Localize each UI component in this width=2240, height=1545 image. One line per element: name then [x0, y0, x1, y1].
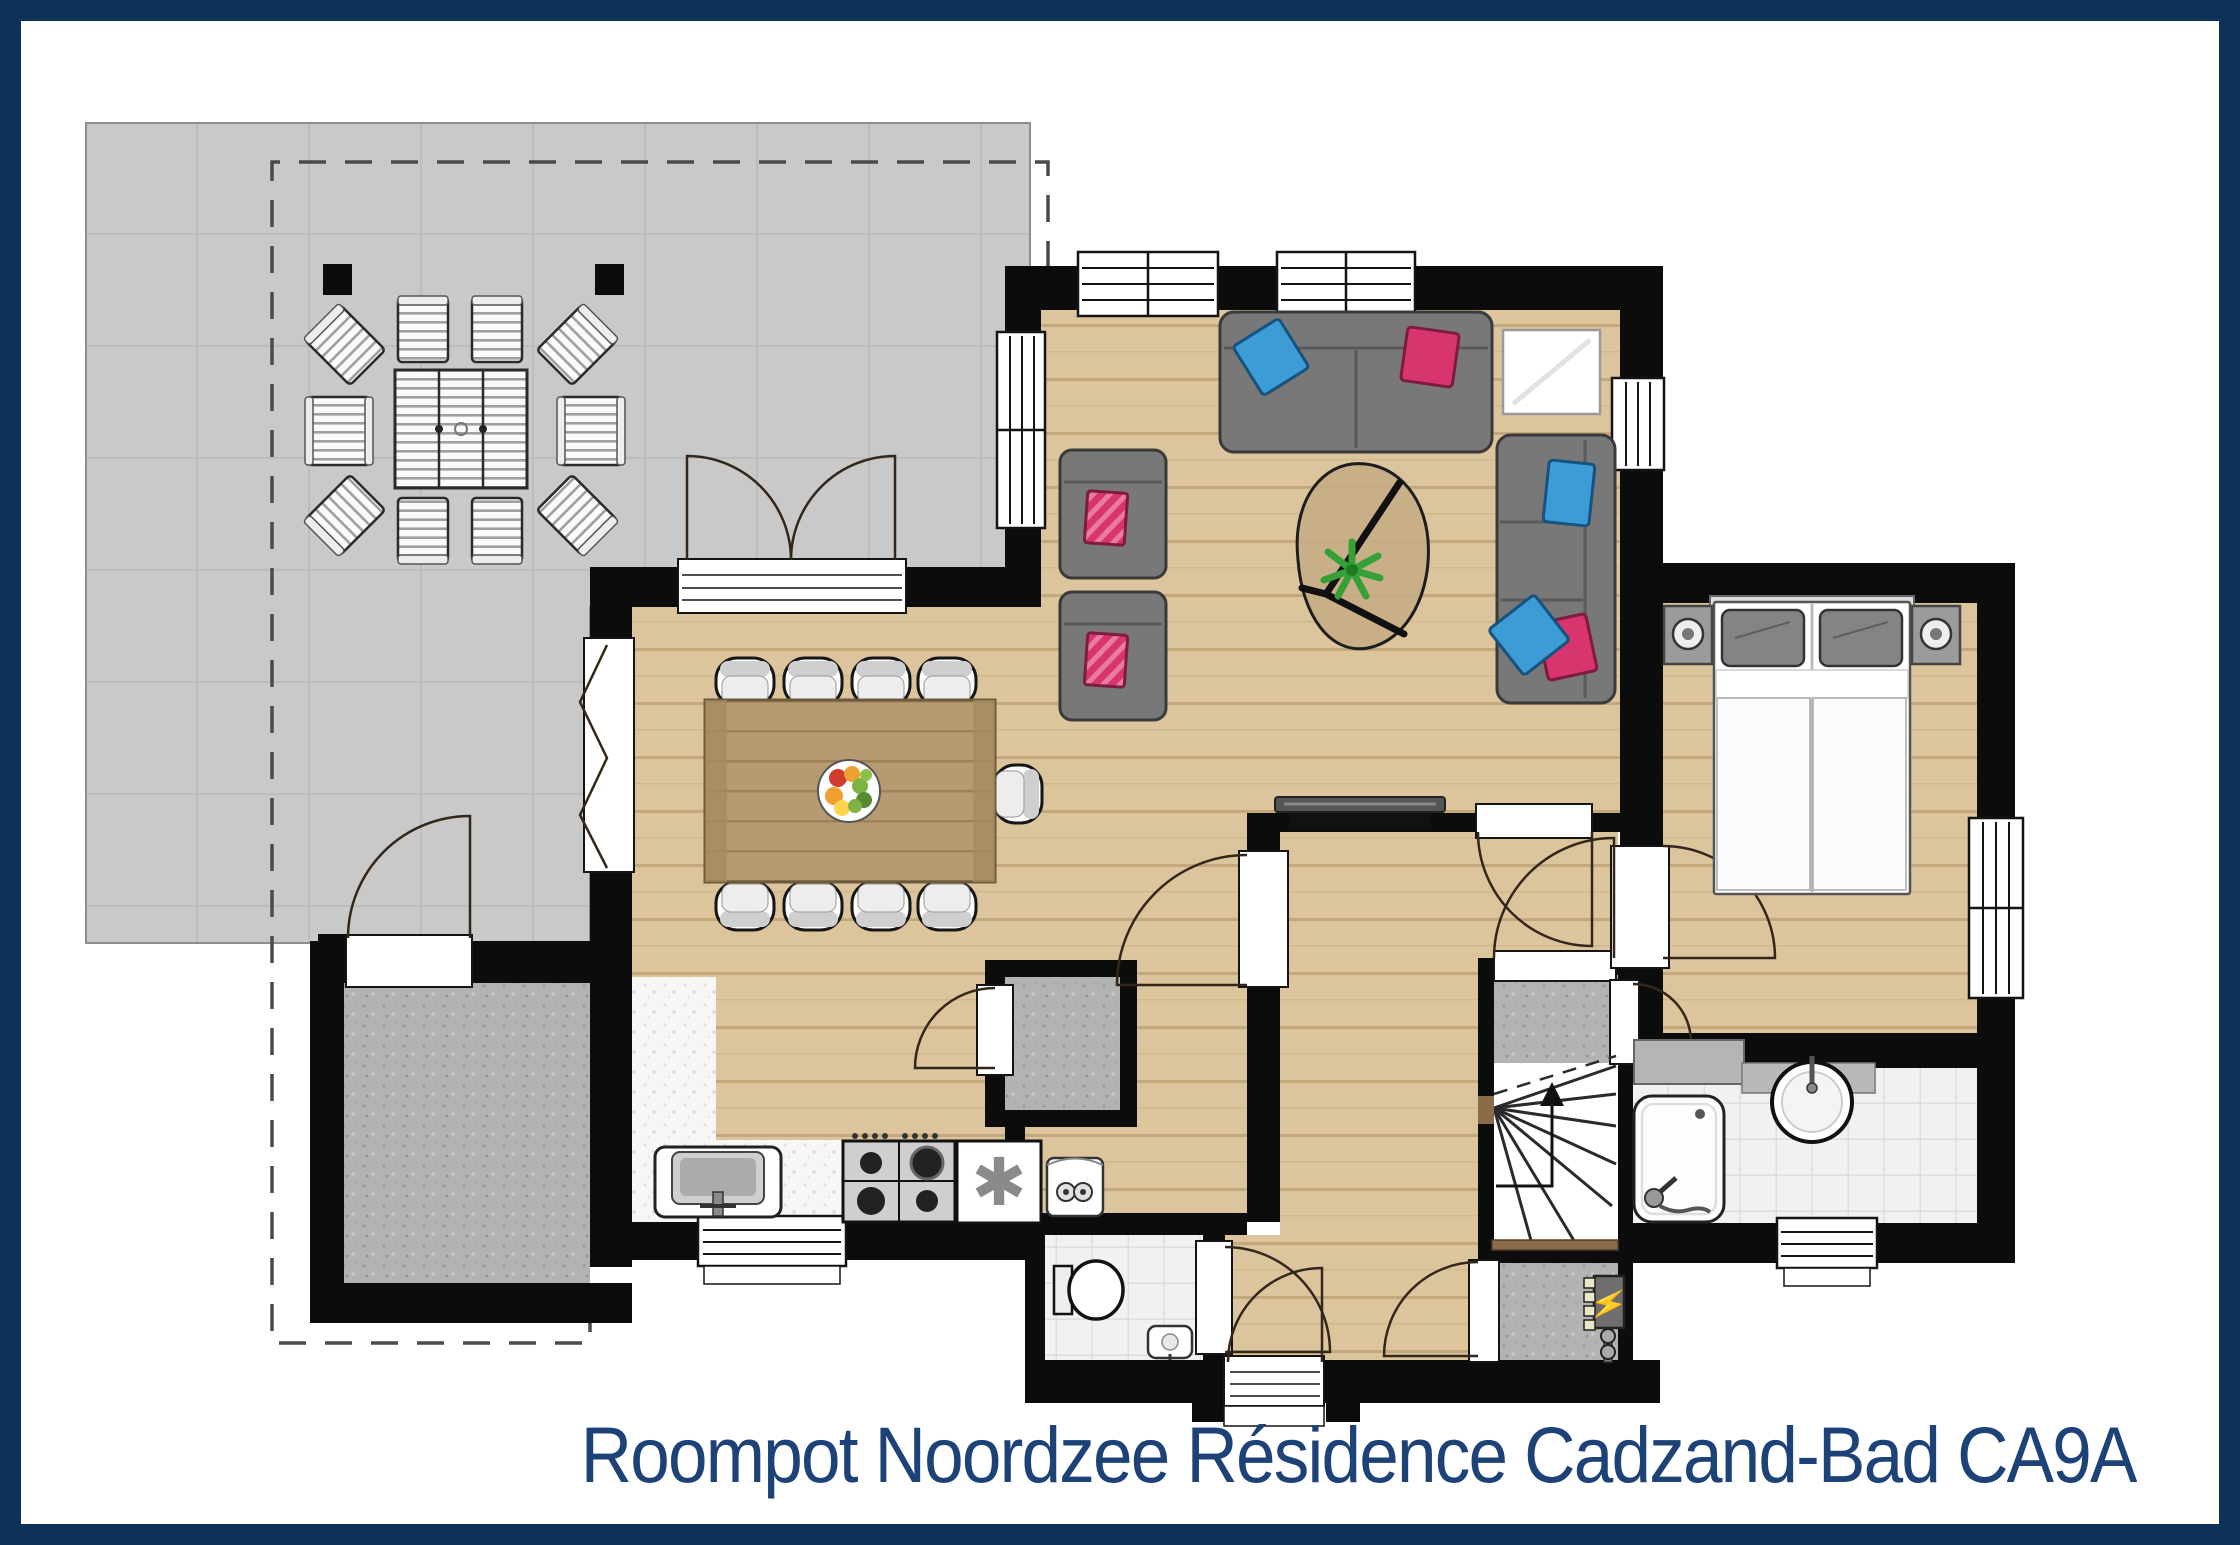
pillow-icon [1820, 610, 1902, 666]
nightstand [1664, 606, 1712, 664]
wall [1025, 1360, 1660, 1403]
wall [310, 941, 344, 1323]
boiler-icon [1047, 1158, 1103, 1216]
shower-icon [1634, 1096, 1724, 1222]
dining-chair-icon [784, 882, 842, 930]
living-room-east-window [1612, 378, 1664, 470]
nightstand [1912, 606, 1960, 664]
double-bed [1710, 596, 1914, 894]
outdoor-chair-icon [472, 296, 522, 362]
floorplan-drawing: ✱ [0, 0, 2240, 1545]
sheet-fold [1716, 670, 1908, 698]
dining-chair-icon [852, 882, 910, 930]
kitchen-floor [632, 977, 716, 1140]
toilet-door-threshold [1196, 1241, 1232, 1354]
pink-pillow-icon [1400, 327, 1459, 388]
outdoor-chair-icon [557, 397, 625, 465]
plan-title: Roompot Noordzee Résidence Cadzand-Bad C… [581, 1409, 2136, 1501]
living-room-west-window [997, 332, 1045, 528]
bedroom-door-threshold [1611, 846, 1669, 968]
svg-text:✱: ✱ [971, 1145, 1026, 1219]
shed-door-threshold [346, 935, 472, 987]
stove-icon [843, 1133, 955, 1222]
pink-pillow-icon [1084, 491, 1128, 546]
blue-pillow-icon [1543, 460, 1595, 526]
post-icon [323, 264, 352, 295]
bedroom-east-window [1969, 818, 2023, 998]
floorplan-image: ✱ [0, 0, 2240, 1545]
dining-chair-icon [994, 765, 1042, 823]
outdoor-chair-icon [472, 498, 522, 564]
outdoor-chair-icon [398, 498, 448, 564]
closet-door-threshold [1469, 1260, 1499, 1362]
wall [985, 960, 1137, 977]
outdoor-table [395, 370, 527, 488]
vestibule-floor [1478, 832, 1618, 958]
armchair [1060, 450, 1166, 578]
living-room-north-window [1277, 252, 1415, 316]
dining-chair-icon [716, 882, 774, 930]
tv-stand [1289, 812, 1431, 829]
bathroom-south-window [1777, 1218, 1877, 1286]
freezer-icon: ✱ [957, 1141, 1041, 1223]
outdoor-chair-icon [305, 397, 373, 465]
storage-door-threshold [977, 985, 1013, 1075]
front-door-threshold [1224, 1356, 1324, 1406]
outdoor-chair-icon [398, 296, 448, 362]
stair-newel [1478, 1096, 1494, 1124]
wall [310, 1283, 632, 1323]
post-icon [595, 264, 624, 295]
storage-closet-floor [1005, 977, 1120, 1110]
stair-landing-floor [1494, 975, 1618, 1065]
duvet [1717, 698, 1810, 890]
kitchen-fixtures: ✱ [655, 1133, 1103, 1223]
duvet [1813, 698, 1906, 890]
living-room-door-threshold [1476, 804, 1592, 838]
sofa-three-seat [1220, 312, 1492, 452]
kitchen-sink [655, 1147, 781, 1217]
living-room-north-window [1078, 252, 1218, 316]
shed-floor [344, 983, 590, 1283]
hallway-floor [1280, 832, 1478, 1362]
toilet-sink-icon [1148, 1326, 1192, 1360]
dining-chair-icon [918, 882, 976, 930]
pink-pillow-icon [1084, 633, 1128, 688]
fruit-bowl-icon [818, 760, 880, 822]
coffee-table [1297, 464, 1428, 649]
sofa-chaise [1488, 435, 1615, 703]
armchair [1060, 592, 1166, 720]
dining-table [705, 700, 995, 882]
landing-door-threshold [1494, 951, 1616, 981]
kitchen-south-window [698, 1216, 846, 1284]
tv-unit [1275, 797, 1445, 829]
french-door-threshold [678, 559, 906, 613]
toilet-icon [1054, 1261, 1123, 1319]
pillow-icon [1722, 610, 1804, 666]
hall-door-threshold [1239, 851, 1288, 987]
stair-stringer [1492, 1240, 1618, 1250]
drain-icon [1695, 1109, 1705, 1119]
bathroom-cabinet [1634, 1040, 1744, 1084]
